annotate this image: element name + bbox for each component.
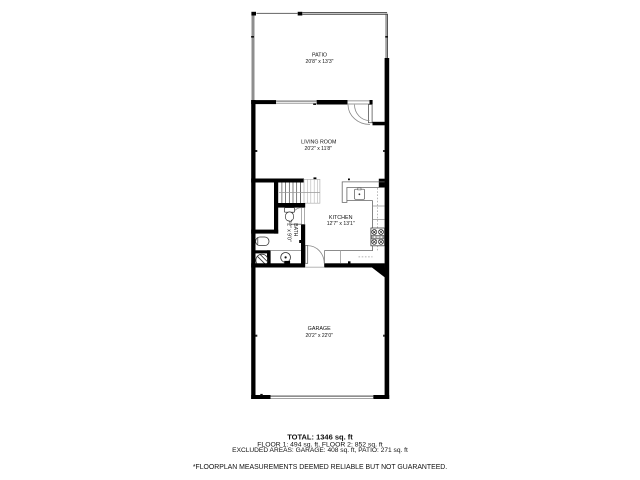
- svg-text:12'7" x 13'1": 12'7" x 13'1": [327, 221, 355, 227]
- svg-text:PATIO: PATIO: [312, 53, 327, 59]
- svg-text:GARAGE: GARAGE: [308, 326, 331, 332]
- svg-text:KITCHEN: KITCHEN: [329, 215, 353, 221]
- svg-text:20'2" x 22'0": 20'2" x 22'0": [305, 333, 333, 339]
- svg-text:20'8" x 13'3": 20'8" x 13'3": [306, 59, 334, 65]
- svg-text:*FLOORPLAN MEASUREMENTS DEEMED: *FLOORPLAN MEASUREMENTS DEEMED RELIABLE …: [193, 464, 447, 471]
- svg-text:20'2" x 11'8": 20'2" x 11'8": [305, 146, 333, 152]
- svg-text:LIVING ROOM: LIVING ROOM: [301, 140, 336, 146]
- svg-text:EXCLUDED AREAS: GARAGE: 408 sq: EXCLUDED AREAS: GARAGE: 408 sq. ft, PATI…: [232, 447, 408, 454]
- svg-text:TOTAL: 1346 sq. ft: TOTAL: 1346 sq. ft: [287, 432, 353, 441]
